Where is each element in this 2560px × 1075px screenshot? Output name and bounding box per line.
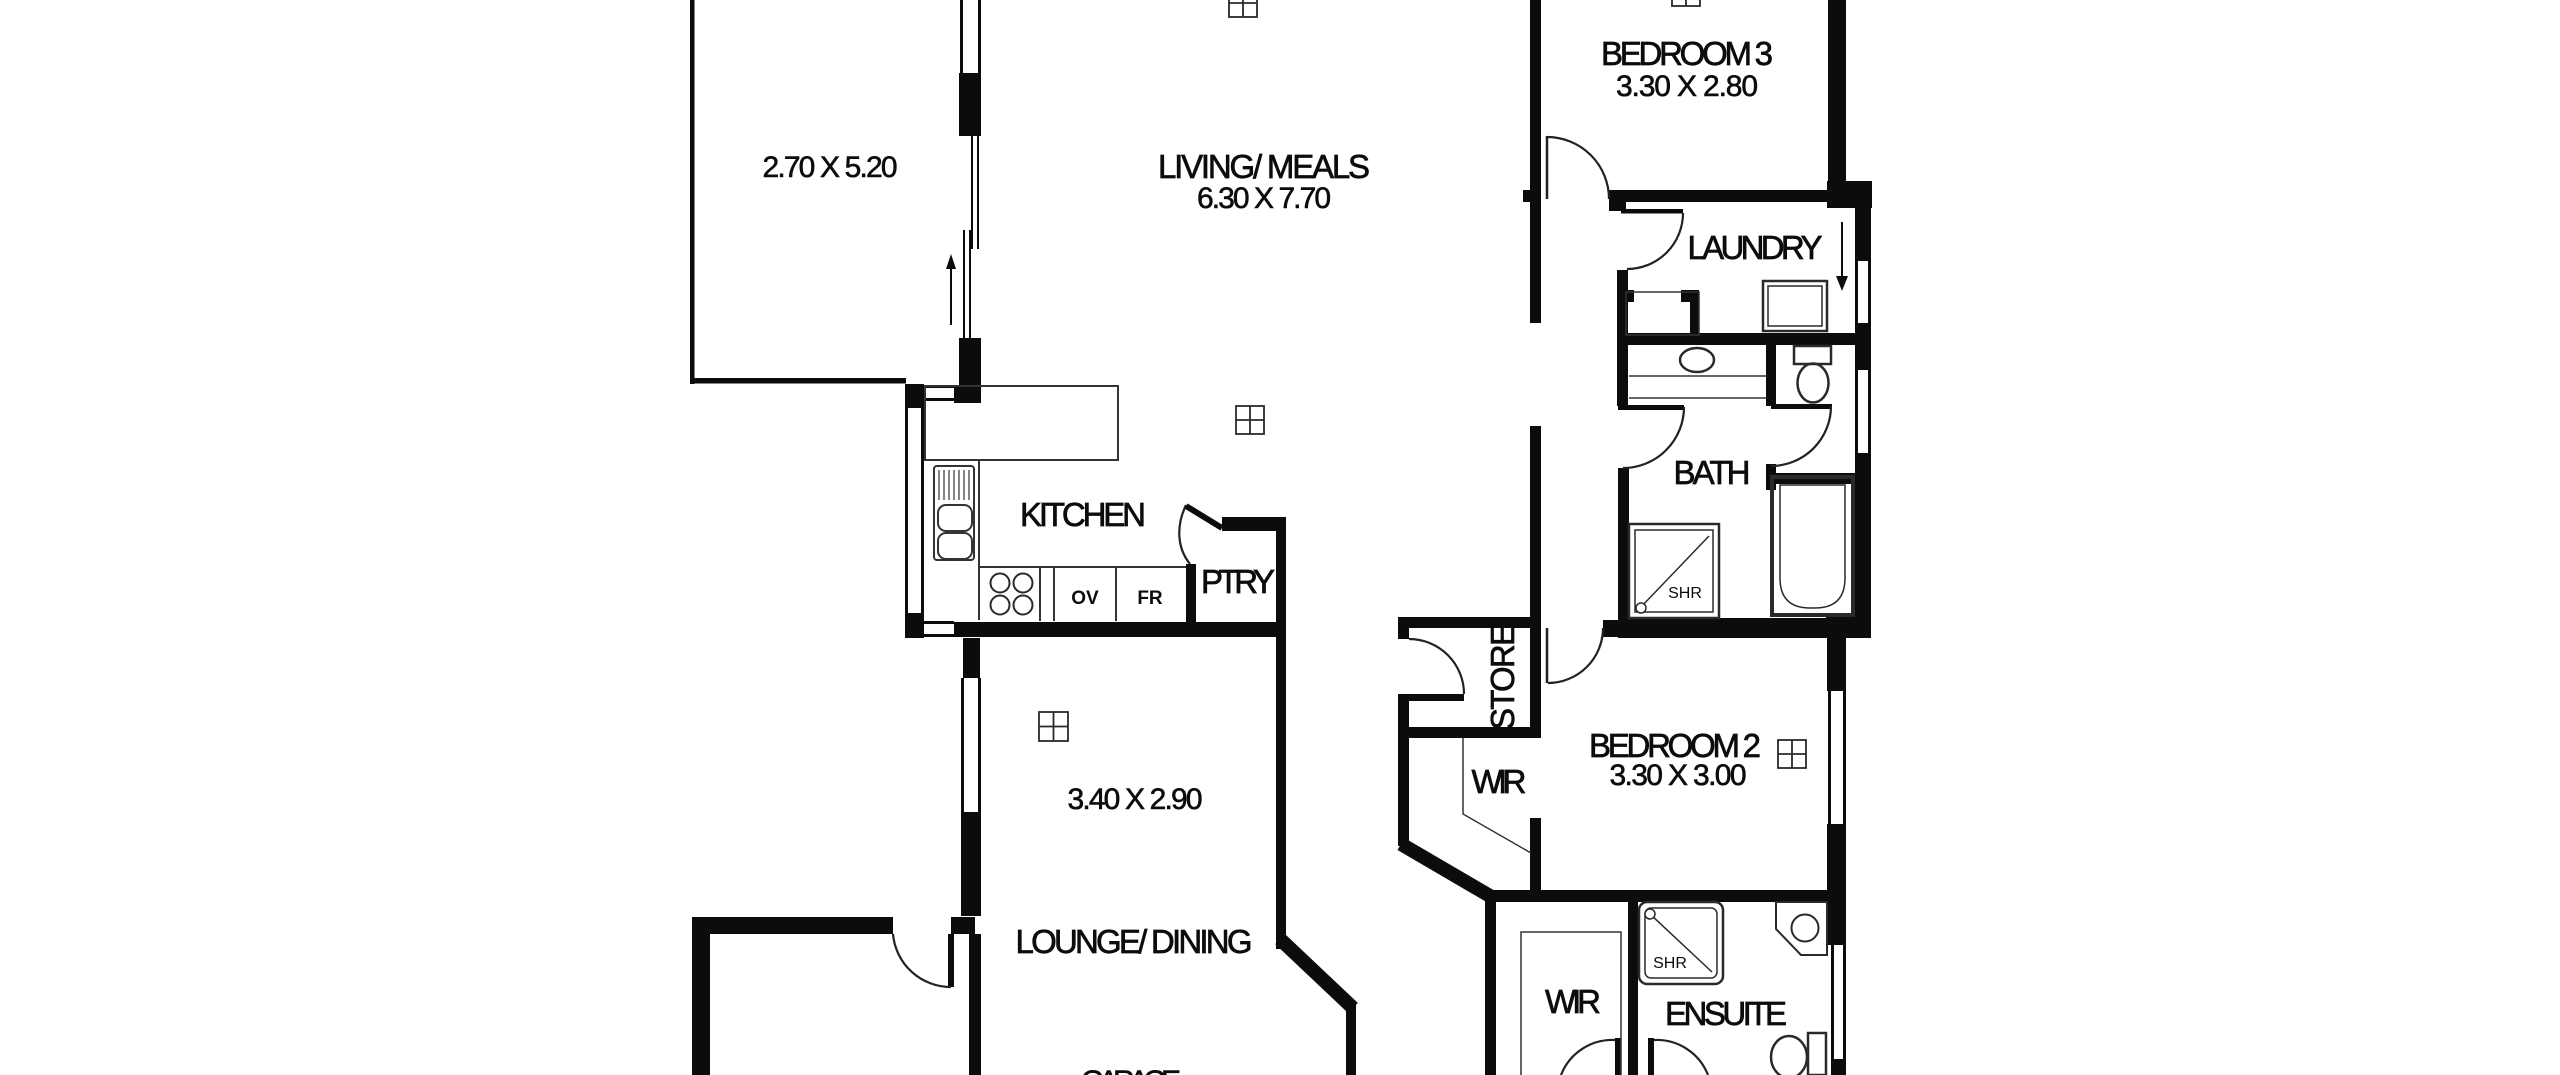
svg-text:3.30 X 2.80: 3.30 X 2.80 — [1616, 70, 1758, 103]
svg-text:LIVING/ MEALS: LIVING/ MEALS — [1158, 148, 1370, 185]
svg-text:KITCHEN: KITCHEN — [1020, 496, 1146, 533]
svg-text:WIR: WIR — [1545, 983, 1601, 1020]
svg-text:LAUNDRY: LAUNDRY — [1688, 229, 1823, 266]
svg-text:BEDROOM 3: BEDROOM 3 — [1601, 35, 1773, 72]
svg-text:3.30 X 3.00: 3.30 X 3.00 — [1610, 759, 1747, 792]
svg-text:BATH: BATH — [1674, 454, 1751, 491]
svg-text:LOUNGE/ DINING: LOUNGE/ DINING — [1016, 923, 1253, 960]
svg-text:SHR: SHR — [1668, 585, 1702, 602]
svg-text:6.30 X 7.70: 6.30 X 7.70 — [1197, 182, 1331, 215]
svg-text:ENSUITE: ENSUITE — [1665, 995, 1787, 1032]
svg-text:3.40 X 2.90: 3.40 X 2.90 — [1068, 783, 1203, 816]
svg-text:2.70 X 5.20: 2.70 X 5.20 — [763, 151, 898, 184]
svg-text:OV: OV — [1071, 588, 1099, 609]
svg-text:WIR: WIR — [1472, 763, 1527, 800]
svg-text:GARAGE: GARAGE — [1081, 1065, 1181, 1075]
svg-text:STORE: STORE — [1484, 624, 1521, 730]
svg-text:SHR: SHR — [1653, 955, 1687, 972]
svg-text:PTRY: PTRY — [1201, 563, 1275, 600]
svg-text:FR: FR — [1137, 588, 1163, 609]
